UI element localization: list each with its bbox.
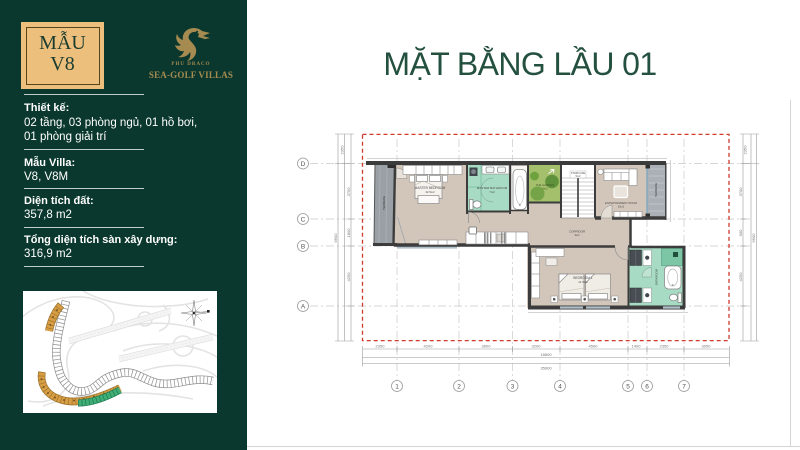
svg-text:2350: 2350 [376,344,386,349]
svg-text:9600: 9600 [333,233,338,243]
svg-text:6: 6 [645,384,649,391]
svg-text:3: 3 [511,384,515,391]
svg-text:9600: 9600 [751,233,756,243]
svg-text:D: D [301,161,306,168]
svg-text:B: B [301,244,305,251]
svg-text:3200: 3200 [532,344,542,349]
svg-text:5m2: 5m2 [575,174,581,178]
svg-text:A: A [301,304,306,311]
svg-text:4250: 4250 [738,272,743,282]
svg-text:2350: 2350 [340,145,345,155]
svg-text:3600: 3600 [482,344,492,349]
svg-text:ENTERTAINMENT ROOM: ENTERTAINMENT ROOM [605,201,637,205]
svg-text:4: 4 [558,384,562,391]
svg-text:4200: 4200 [424,344,434,349]
svg-text:CORRIDOR: CORRIDOR [569,230,586,234]
svg-text:9m2: 9m2 [574,233,580,237]
svg-text:4500: 4500 [589,344,599,349]
svg-text:C: C [301,217,306,224]
svg-text:TERRACE: TERRACE [654,183,658,197]
svg-text:2350: 2350 [660,344,670,349]
svg-text:2: 2 [457,384,461,391]
svg-text:7m2: 7m2 [489,190,495,194]
svg-text:32.5m2: 32.5m2 [425,190,435,194]
svg-text:3050: 3050 [702,344,712,349]
svg-text:900: 900 [738,229,743,236]
svg-text:1800: 1800 [346,228,351,238]
svg-text:3750: 3750 [346,187,351,197]
svg-text:21.5m2: 21.5m2 [578,280,588,284]
svg-text:BATHROOM: BATHROOM [655,268,659,285]
svg-text:16m2: 16m2 [618,205,625,209]
svg-text:2350: 2350 [743,145,748,155]
svg-text:35600: 35600 [540,366,552,371]
svg-text:1400: 1400 [632,344,642,349]
svg-text:TERRACE: TERRACE [382,196,386,210]
svg-text:4250: 4250 [346,272,351,282]
svg-text:7: 7 [682,384,686,391]
svg-text:18800: 18800 [540,352,552,357]
svg-text:1: 1 [395,384,399,391]
svg-text:THE GARDEN: THE GARDEN [536,183,554,187]
svg-text:3700: 3700 [738,187,743,197]
svg-text:6m2: 6m2 [542,187,548,191]
svg-text:5: 5 [626,384,630,391]
